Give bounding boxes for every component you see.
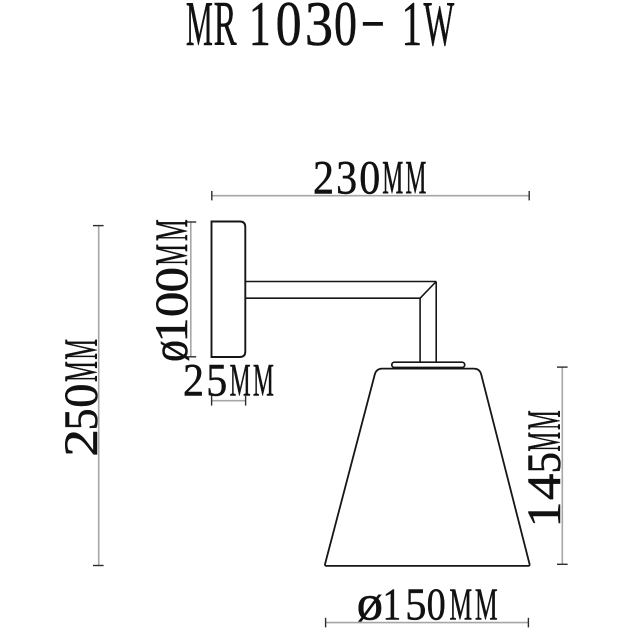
svg-text:ø100MM: ø100MM bbox=[142, 219, 199, 362]
svg-text:145MM: 145MM bbox=[518, 410, 571, 527]
svg-text:230MM: 230MM bbox=[313, 153, 426, 205]
svg-text:250MM: 250MM bbox=[56, 339, 108, 457]
svg-text:MR1030−1W: MR1030−1W bbox=[186, 0, 455, 59]
svg-text:ø150MM: ø150MM bbox=[357, 575, 498, 630]
